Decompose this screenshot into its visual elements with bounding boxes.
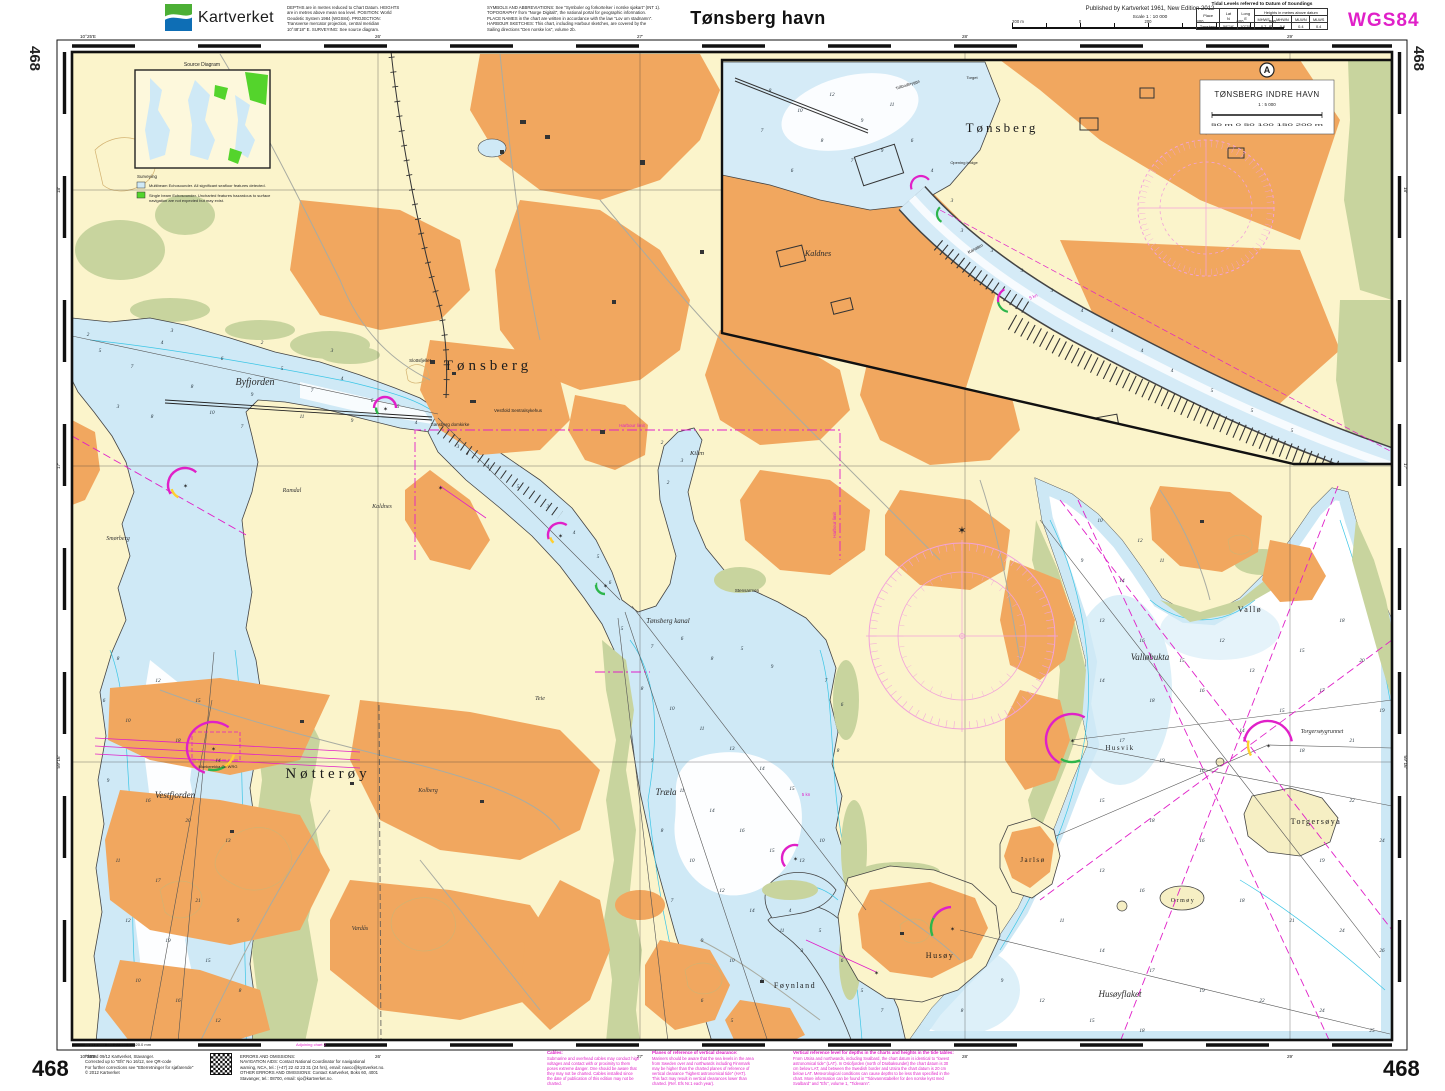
svg-text:✶: ✶ bbox=[950, 926, 955, 933]
source-diagram-title: Source Diagram bbox=[184, 62, 220, 68]
map-label: Vestfold Sentralsykehus bbox=[494, 408, 543, 413]
depth-sounding: 9 bbox=[701, 938, 704, 944]
depth-sounding: 24 bbox=[1319, 1007, 1325, 1014]
depth-sounding: 4 bbox=[931, 167, 934, 174]
svg-text:✶: ✶ bbox=[603, 583, 608, 590]
depth-sounding: 12 bbox=[215, 1018, 221, 1024]
svg-text:✶: ✶ bbox=[1266, 743, 1271, 750]
depth-sounding: 5 bbox=[1291, 428, 1294, 434]
depth-sounding: 7 bbox=[851, 158, 854, 164]
depth-sounding: 4 bbox=[415, 419, 418, 426]
chart-sheet: Kartverket DEPTHS are in metres reduced … bbox=[0, 0, 1445, 1091]
depth-sounding: 25 bbox=[1369, 1028, 1375, 1034]
depth-sounding: 4 bbox=[161, 339, 164, 346]
depth-sounding: 6 bbox=[841, 702, 844, 708]
depth-sounding: 8 bbox=[837, 748, 840, 754]
depth-sounding: 16 bbox=[1199, 768, 1205, 774]
depth-sounding: 18 bbox=[1299, 748, 1305, 754]
note-title: Cables: bbox=[547, 1050, 647, 1055]
map-label: Harbour limit bbox=[619, 423, 645, 428]
depth-sounding: 22 bbox=[1259, 998, 1265, 1004]
map-label: Træla bbox=[655, 787, 677, 797]
depth-sounding: 18 bbox=[1139, 1028, 1145, 1034]
depth-sounding: 5 bbox=[819, 928, 822, 934]
depth-sounding: 3 bbox=[331, 348, 334, 354]
depth-sounding: 6 bbox=[681, 636, 684, 642]
map-label: Valløbukta bbox=[1131, 652, 1170, 662]
depth-sounding: 19 bbox=[1159, 758, 1165, 764]
depth-sounding: 13 bbox=[1249, 668, 1255, 674]
depth-sounding: 12 bbox=[829, 92, 835, 98]
depth-sounding: 18 bbox=[1339, 618, 1345, 624]
svg-text:✶: ✶ bbox=[558, 533, 563, 540]
depth-sounding: 4 bbox=[573, 529, 576, 536]
map-label: Husøyflaket bbox=[1098, 989, 1142, 999]
depth-sounding: 5 bbox=[517, 484, 520, 490]
map-label: Tønsberg kanal bbox=[646, 617, 690, 625]
depth-sounding: 10 bbox=[819, 838, 825, 844]
depth-sounding: 5 bbox=[731, 1018, 734, 1024]
map-label: Kilen bbox=[689, 450, 704, 457]
depth-sounding: 9 bbox=[861, 118, 864, 124]
depth-sounding: 4 bbox=[341, 375, 344, 382]
svg-text:✶: ✶ bbox=[183, 483, 188, 490]
depth-sounding: 3 bbox=[681, 458, 684, 464]
depth-sounding: 15 bbox=[1089, 1018, 1095, 1024]
depth-sounding: 4 bbox=[1141, 347, 1144, 354]
map-label: Kaldnes bbox=[804, 249, 831, 258]
depth-sounding: 5 bbox=[1251, 408, 1254, 414]
map-label: Ramdal bbox=[282, 488, 302, 494]
depth-sounding: 14 bbox=[709, 807, 715, 814]
depth-sounding: 14 bbox=[1099, 947, 1105, 954]
depth-sounding: 6 bbox=[841, 958, 844, 964]
depth-sounding: 16 bbox=[145, 798, 151, 804]
depth-sounding: 14 bbox=[1239, 727, 1245, 734]
latitude-label: 17' bbox=[1403, 463, 1408, 469]
latitude-label: 59°16' bbox=[56, 755, 61, 768]
depth-sounding: 3 bbox=[117, 404, 120, 410]
depth-sounding: 11 bbox=[890, 102, 895, 108]
map-label: Harbour limit bbox=[832, 512, 837, 538]
chart-number-bottom-left: 468 bbox=[32, 1056, 69, 1082]
depth-sounding: 5 bbox=[861, 988, 864, 994]
map-label: Tønsberg bbox=[966, 120, 1039, 135]
map-label: Vardås bbox=[352, 925, 369, 932]
depth-sounding: 15 bbox=[1299, 648, 1305, 654]
depth-sounding: 5 bbox=[741, 646, 744, 652]
depth-sounding: 16 bbox=[739, 828, 745, 834]
depth-sounding: 18 bbox=[1149, 698, 1155, 704]
depth-sounding: 9 bbox=[651, 758, 654, 764]
map-label: Vestfjorden bbox=[155, 790, 196, 800]
longitude-label: 29' bbox=[1287, 34, 1293, 39]
depth-sounding: 13 bbox=[225, 838, 231, 844]
qr-code bbox=[210, 1053, 232, 1075]
map-label: Opening bridge bbox=[950, 160, 978, 165]
depth-sounding: 14 bbox=[1099, 677, 1105, 684]
depth-sounding: 12 bbox=[125, 918, 131, 924]
depth-sounding: 4 bbox=[487, 463, 490, 470]
depth-sounding: 3 bbox=[171, 328, 174, 334]
depth-sounding: 8 bbox=[821, 138, 824, 144]
depth-sounding: 11 bbox=[780, 928, 785, 934]
depth-sounding: 9 bbox=[881, 148, 884, 154]
depth-sounding: 5 bbox=[281, 366, 284, 372]
inset-badge: A bbox=[1264, 65, 1271, 75]
note-title: Vertical reference level for depths in t… bbox=[793, 1050, 978, 1055]
depth-sounding: 7 bbox=[825, 678, 828, 684]
depth-sounding: 12 bbox=[719, 888, 725, 894]
depth-sounding: 3 bbox=[457, 444, 460, 450]
depth-sounding: 2 bbox=[87, 332, 90, 338]
note-body: From Utsira and northwards, including Sv… bbox=[793, 1056, 978, 1086]
map-label: Torgersøygrunnet bbox=[1301, 729, 1344, 735]
errors-omissions-note: ERRORS AND OMISSIONS: NAVIGATION AIDS: C… bbox=[240, 1054, 410, 1081]
depth-sounding: 3 bbox=[1051, 288, 1054, 294]
map-label: Ormøy bbox=[1171, 898, 1196, 904]
depth-sounding: 9 bbox=[237, 918, 240, 924]
depth-sounding: 22 bbox=[1349, 798, 1355, 804]
depth-sounding: 10 bbox=[689, 858, 695, 864]
longitude-label: 27' bbox=[637, 34, 643, 39]
depth-sounding: 8 bbox=[191, 384, 194, 390]
depth-sounding: 2 bbox=[661, 440, 664, 446]
depth-sounding: 2 bbox=[261, 340, 264, 346]
longitude-label: 10°25'E bbox=[80, 34, 96, 39]
depth-sounding: 6 bbox=[103, 698, 106, 704]
depth-sounding: 15 bbox=[789, 786, 795, 792]
depth-sounding: 9 bbox=[251, 392, 254, 398]
depth-sounding: 6 bbox=[911, 138, 914, 144]
depth-sounding: 12 bbox=[155, 678, 161, 684]
depth-sounding: 8 bbox=[769, 88, 772, 94]
depth-sounding: 11 bbox=[116, 858, 121, 864]
depth-sounding: 24 bbox=[1379, 837, 1385, 844]
depth-sounding: 12 bbox=[1039, 998, 1045, 1004]
latitude-label: 17' bbox=[56, 463, 61, 469]
depth-sounding: 11 bbox=[680, 788, 685, 794]
note-title: Planes of reference of vertical clearanc… bbox=[652, 1050, 780, 1055]
depth-sounding: 10 bbox=[669, 706, 675, 712]
depth-sounding: 19 bbox=[1319, 858, 1325, 864]
depth-sounding: 26 bbox=[1379, 948, 1385, 954]
latitude-label: 18' bbox=[56, 187, 61, 193]
depth-sounding: 24 bbox=[1339, 927, 1345, 934]
depth-sounding: 5 bbox=[621, 626, 624, 632]
depth-sounding: 14 bbox=[215, 757, 221, 764]
depth-sounding: 5 bbox=[597, 554, 600, 560]
note-body: Mariners should be aware that the sea le… bbox=[652, 1056, 780, 1086]
map-body: ✶ bbox=[72, 42, 1392, 1042]
depth-sounding: 15 bbox=[1099, 798, 1105, 804]
depth-sounding: 9 bbox=[771, 664, 774, 670]
longitude-label: 29' bbox=[1287, 1054, 1293, 1059]
depth-sounding: 17 bbox=[1149, 968, 1155, 974]
inset-scalebar-labels: 50 m 0 50 100 150 200 m bbox=[1211, 123, 1323, 127]
note-reference-level: Vertical reference level for depths in t… bbox=[793, 1050, 978, 1086]
depth-sounding: 17 bbox=[155, 878, 161, 884]
longitude-label: 28' bbox=[962, 34, 968, 39]
corner-number-top-left: 468 bbox=[26, 46, 43, 71]
depth-sounding: 13 bbox=[1099, 868, 1105, 874]
depth-sounding: 10 bbox=[125, 718, 131, 724]
depth-sounding: 21 bbox=[1289, 918, 1295, 924]
depth-sounding: 13 bbox=[799, 858, 805, 864]
depth-sounding: 5 bbox=[397, 404, 400, 410]
depth-sounding: 18 bbox=[1239, 898, 1245, 904]
depth-sounding: 14 bbox=[749, 907, 755, 914]
map-label: Munkerekka Oc WRG bbox=[199, 764, 238, 769]
depth-sounding: 19 bbox=[165, 938, 171, 944]
depth-sounding: 18 bbox=[1149, 818, 1155, 824]
depth-sounding: 10 bbox=[135, 978, 141, 984]
depth-sounding: 8 bbox=[151, 414, 154, 420]
map-label: Byfjorden bbox=[235, 377, 274, 388]
depth-sounding: 8 bbox=[239, 988, 242, 994]
depth-sounding: 11 bbox=[1160, 558, 1165, 564]
svg-text:✶: ✶ bbox=[1070, 738, 1075, 745]
depth-sounding: 7 bbox=[671, 898, 674, 904]
depth-sounding: 7 bbox=[131, 364, 134, 370]
depth-sounding: 7 bbox=[881, 1008, 884, 1014]
depth-sounding: 6 bbox=[371, 398, 374, 404]
depth-sounding: 7 bbox=[241, 424, 244, 430]
map-label: Tønsberg domkirke bbox=[431, 422, 470, 427]
depth-sounding: 3 bbox=[801, 948, 804, 954]
depth-sounding: 13 bbox=[729, 746, 735, 752]
depth-sounding: 6 bbox=[609, 580, 612, 586]
svg-text:✶: ✶ bbox=[438, 485, 443, 492]
depth-sounding: 4 bbox=[1081, 307, 1084, 314]
depth-sounding: 21 bbox=[1349, 738, 1355, 744]
inner-frame-note: Inner frame 590.2 / 995.0 : 620.0 mm bbox=[85, 1042, 151, 1047]
longitude-label: 26' bbox=[375, 34, 381, 39]
inset-scale: 1 : 5 000 bbox=[1258, 102, 1276, 107]
map-label: Nøtterøy bbox=[285, 766, 370, 782]
depth-sounding: 4 bbox=[789, 907, 792, 914]
map-label: Torgersøya bbox=[1291, 817, 1342, 826]
map-label: Kaldnes bbox=[371, 504, 392, 510]
depth-sounding: 9 bbox=[1081, 558, 1084, 564]
latitude-label: 18' bbox=[1403, 187, 1408, 193]
depth-sounding: 16 bbox=[1139, 638, 1145, 644]
depth-sounding: 7 bbox=[651, 644, 654, 650]
chart-number-bottom-right: 468 bbox=[1383, 1056, 1420, 1082]
depth-sounding: 6 bbox=[791, 168, 794, 174]
depth-sounding: 9 bbox=[107, 778, 110, 784]
depth-sounding: 4 bbox=[1171, 367, 1174, 374]
depth-sounding: 3 bbox=[1021, 268, 1024, 274]
depth-sounding: 10 bbox=[797, 108, 803, 114]
depth-sounding: 8 bbox=[641, 686, 644, 692]
depth-sounding: 10 bbox=[209, 410, 215, 416]
source-diagram-surveying: Surveying bbox=[137, 174, 158, 179]
map-label: Torget bbox=[966, 75, 978, 80]
depth-sounding: 20 bbox=[1359, 658, 1365, 664]
svg-text:✶: ✶ bbox=[383, 406, 388, 413]
depth-sounding: 14 bbox=[759, 765, 765, 772]
corner-number-top-right: 468 bbox=[1410, 46, 1427, 71]
depth-sounding: 6 bbox=[701, 998, 704, 1004]
inset-title: TØNSBERG INDRE HAVN bbox=[1214, 90, 1319, 99]
depth-sounding: 16 bbox=[1199, 688, 1205, 694]
map-label: Jarlsø bbox=[1020, 856, 1045, 864]
depth-sounding: 8 bbox=[711, 656, 714, 662]
depth-sounding: 4 bbox=[1111, 327, 1114, 334]
map-label: Smørberg bbox=[106, 536, 129, 542]
map-label: Vallø bbox=[1238, 605, 1262, 614]
map-label: 5 kn bbox=[802, 792, 811, 797]
depth-sounding: 9 bbox=[351, 418, 354, 424]
map-label: Husøy bbox=[926, 951, 954, 960]
nautical-chart: ✶ bbox=[0, 0, 1445, 1091]
depth-sounding: 5 bbox=[99, 348, 102, 354]
depth-sounding: 8 bbox=[761, 978, 764, 984]
map-label: Slottsfjellet bbox=[409, 358, 432, 363]
adjoining-chart-note: Adjoining chart 2 bbox=[296, 1042, 326, 1047]
compass-north-star-icon: ✶ bbox=[957, 525, 966, 537]
latitude-label: 59°16' bbox=[1403, 756, 1408, 769]
depth-sounding: 7 bbox=[761, 128, 764, 134]
depth-sounding: 18 bbox=[175, 738, 181, 744]
map-label: Føynland bbox=[774, 981, 816, 990]
note-body: Submarine and overhead cables may conduc… bbox=[547, 1056, 647, 1086]
depth-sounding: 12 bbox=[1219, 638, 1225, 644]
note-cables: Cables: Submarine and overhead cables ma… bbox=[547, 1050, 647, 1086]
depth-sounding: 2 bbox=[667, 480, 670, 486]
depth-sounding: 11 bbox=[300, 414, 305, 420]
depth-sounding: 7 bbox=[311, 388, 314, 394]
depth-sounding: 6 bbox=[221, 356, 224, 362]
depth-sounding: 20 bbox=[185, 818, 191, 824]
depth-sounding: 21 bbox=[195, 898, 201, 904]
map-label: Husvik bbox=[1105, 744, 1134, 752]
depth-sounding: 9 bbox=[1001, 978, 1004, 984]
depth-sounding: 19 bbox=[1379, 708, 1385, 714]
source-legend-multibeam: Multibeam Echosounder. All significant s… bbox=[149, 183, 266, 188]
map-label: Stensarmen bbox=[735, 588, 760, 593]
depth-sounding: 3 bbox=[991, 248, 994, 254]
depth-sounding: 19 bbox=[1199, 988, 1205, 994]
depth-sounding: 3 bbox=[961, 228, 964, 234]
depth-sounding: 12 bbox=[1137, 538, 1143, 544]
note-vertical-clearance: Planes of reference of vertical clearanc… bbox=[652, 1050, 780, 1086]
depth-sounding: 8 bbox=[961, 1008, 964, 1014]
depth-sounding: 11 bbox=[700, 726, 705, 732]
depth-sounding: 15 bbox=[769, 848, 775, 854]
depth-sounding: 15 bbox=[1179, 658, 1185, 664]
map-label: Tønsberg bbox=[444, 358, 532, 374]
depth-sounding: 16 bbox=[175, 998, 181, 1004]
plotted-note: Plotted 09/12 Kartverket, Stavanger. Cor… bbox=[85, 1054, 205, 1076]
depth-sounding: 5 bbox=[1211, 388, 1214, 394]
depth-sounding: 3 bbox=[951, 198, 954, 204]
depth-sounding: 8 bbox=[117, 656, 120, 662]
depth-sounding: 3 bbox=[547, 504, 550, 510]
depth-sounding: 16 bbox=[1199, 838, 1205, 844]
depth-sounding: 15 bbox=[1279, 708, 1285, 714]
svg-text:✶: ✶ bbox=[874, 970, 879, 977]
depth-sounding: 11 bbox=[1060, 918, 1065, 924]
depth-sounding: 14 bbox=[1119, 577, 1125, 584]
pond bbox=[478, 139, 506, 157]
depth-sounding: 8 bbox=[661, 828, 664, 834]
svg-text:✶: ✶ bbox=[793, 856, 798, 863]
depth-sounding: 17 bbox=[1319, 688, 1325, 694]
map-label: Kolberg bbox=[417, 788, 437, 794]
depth-sounding: 10 bbox=[1097, 518, 1103, 524]
depth-sounding: 13 bbox=[1099, 618, 1105, 624]
depth-sounding: 15 bbox=[195, 698, 201, 704]
map-label: Teie bbox=[535, 696, 545, 702]
depth-sounding: 15 bbox=[205, 958, 211, 964]
depth-sounding: 10 bbox=[729, 958, 735, 964]
svg-text:✶: ✶ bbox=[211, 746, 216, 753]
depth-sounding: 16 bbox=[1139, 888, 1145, 894]
